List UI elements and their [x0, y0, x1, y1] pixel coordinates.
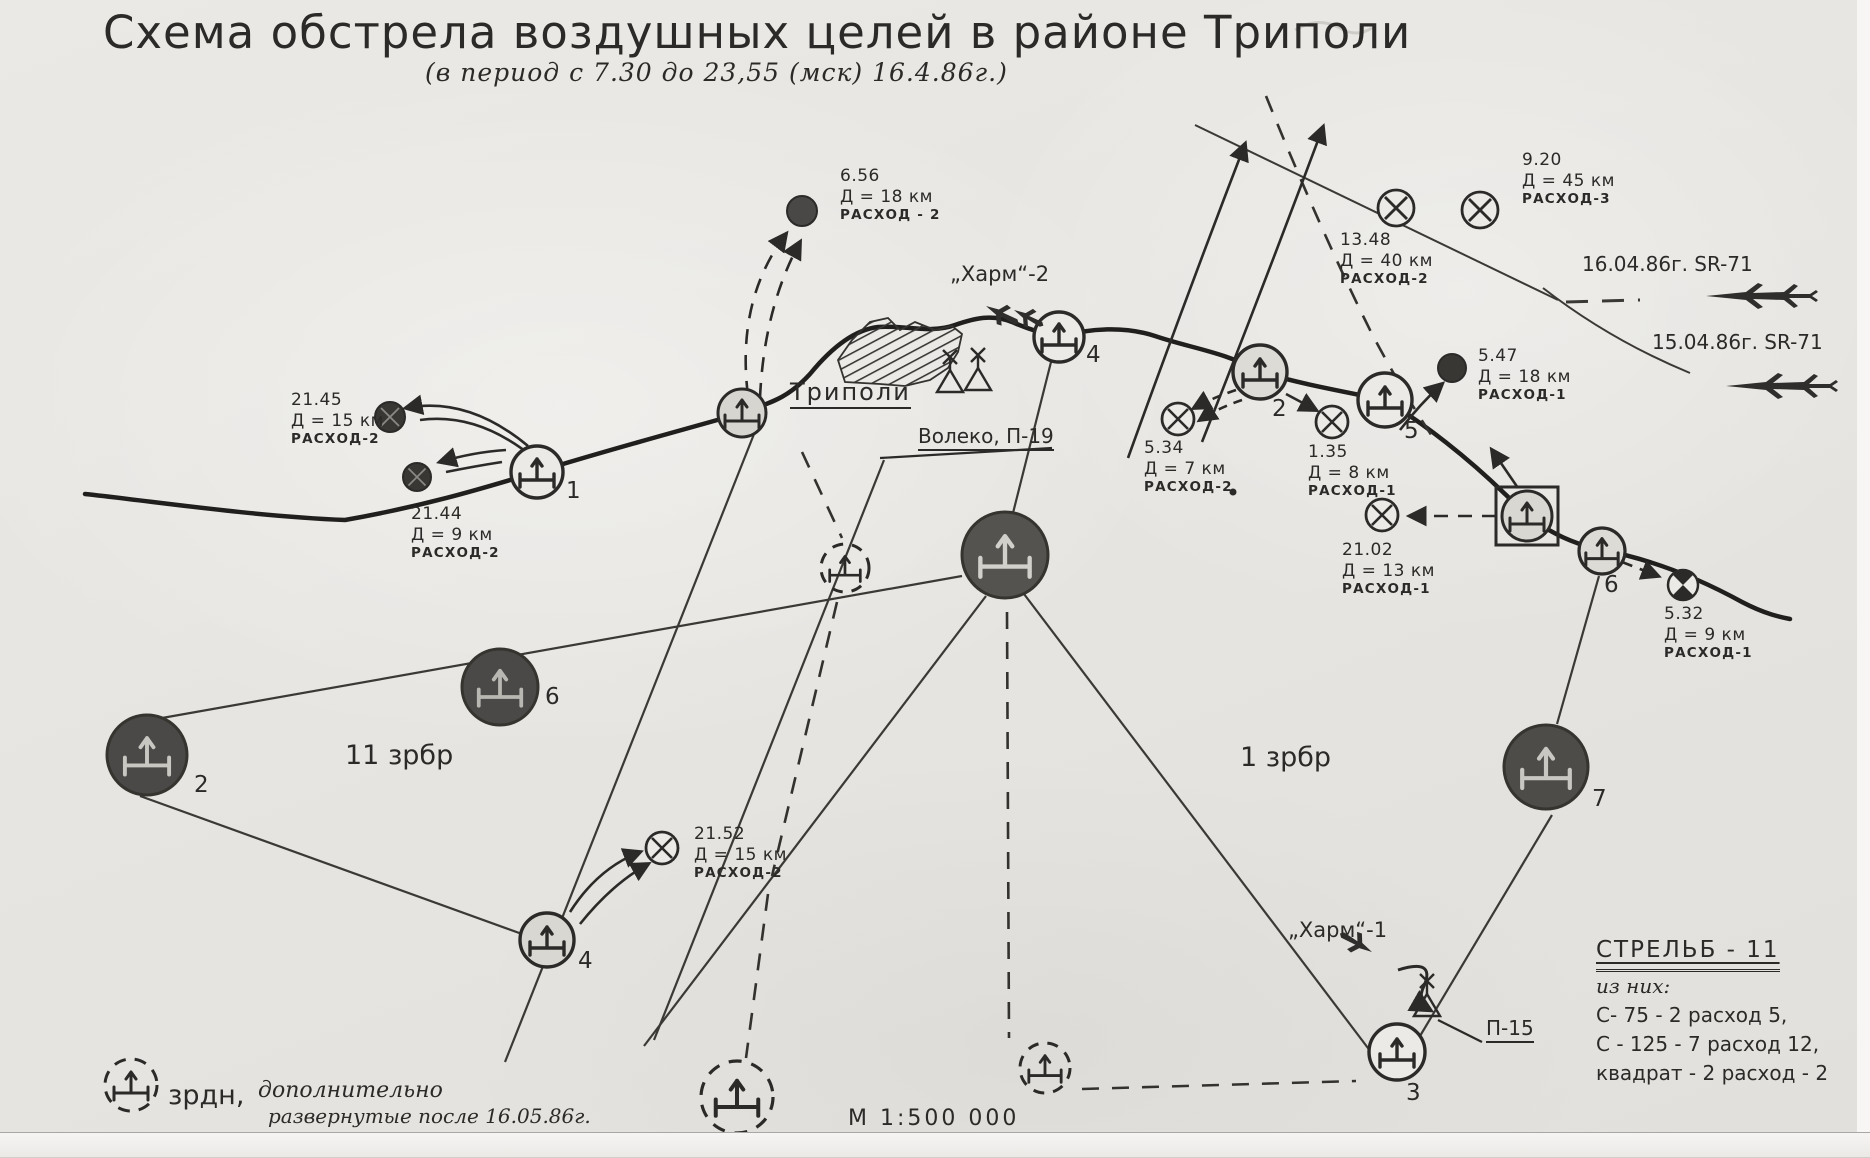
engagement-time: 5.34 — [1144, 438, 1233, 459]
firing-summary-box: стрельб - 11 из них: С- 75 - 2 расход 5,… — [1596, 934, 1828, 1088]
engagement-range: Д = 18 км — [1478, 367, 1571, 388]
sam-site-icon-w-coastal — [718, 389, 766, 437]
engagement-range: Д = 18 км — [840, 187, 941, 208]
engagement-range: Д = 7 км — [1144, 459, 1233, 480]
harm2-label: „Харм“-2 — [950, 262, 1049, 286]
engagement-time: 5.47 — [1478, 346, 1571, 367]
legend-note-line1: дополнительно — [258, 1078, 443, 1103]
kill-mark-532-pie-icon — [1668, 570, 1698, 600]
engagement-expenditure: расход-2 — [411, 545, 500, 561]
engagement-time: 21.52 — [694, 824, 787, 845]
engagement-annotation-2144: 21.44 Д = 9 км расход-2 — [411, 504, 500, 562]
sam-site-icon-dashed-3 — [1020, 1043, 1070, 1093]
sam-site-icon-e2 — [1233, 345, 1287, 399]
engagement-expenditure: расход-2 — [694, 865, 787, 881]
city-label-tripoli: Триполи — [790, 378, 911, 409]
map-scale-label: М 1:500 000 — [848, 1106, 1019, 1131]
firing-summary-line-s125: С - 125 - 7 расход 12, — [1596, 1030, 1828, 1059]
sam-site-icon-dashed-2 — [701, 1061, 773, 1133]
radar-label-p15: П-15 — [1486, 1016, 1534, 1043]
engagement-time: 9.20 — [1522, 150, 1615, 171]
engagement-annotation-135: 1.35 Д = 8 км расход-1 — [1308, 442, 1397, 500]
engagement-range: Д = 8 км — [1308, 463, 1397, 484]
engagement-expenditure: расход-1 — [1664, 645, 1753, 661]
launch-mark-2102-icon — [1366, 499, 1398, 531]
sam-site-icon-center-dark — [962, 512, 1048, 598]
site-label-w1: 1 — [566, 478, 581, 504]
engagement-annotation-1348: 13.48 Д = 40 км расход-2 — [1340, 230, 1433, 288]
engagement-annotation-547: 5.47 Д = 18 км расход-1 — [1478, 346, 1571, 404]
engagement-time: 21.44 — [411, 504, 500, 525]
horizontal-scrollbar[interactable] — [0, 1132, 1870, 1158]
launch-mark-2152-icon — [646, 832, 678, 864]
engagement-annotation-656: 6.56 Д = 18 км расход - 2 — [840, 166, 941, 224]
firing-summary-line-s75: С- 75 - 2 расход 5, — [1596, 1001, 1828, 1030]
engagement-annotation-2102: 21.02 Д = 13 км расход-1 — [1342, 540, 1435, 598]
sam-site-icon-e4 — [1034, 312, 1084, 362]
engagement-annotation-2145: 21.45 Д = 15 км расход-2 — [291, 390, 384, 448]
legend-note-line2: развернутые после 16.05.86г. — [268, 1104, 591, 1128]
engagement-expenditure: расход-2 — [291, 431, 384, 447]
engagement-range: Д = 40 км — [1340, 251, 1433, 272]
firing-summary-subtitle: из них: — [1596, 972, 1828, 1001]
engagement-time: 1.35 — [1308, 442, 1397, 463]
engagement-range: Д = 9 км — [411, 525, 500, 546]
sam-site-icon-w6 — [462, 649, 538, 725]
sr71-label-1504: 15.04.86г. SR-71 — [1652, 330, 1823, 354]
engagement-annotation-532: 5.32 Д = 9 км расход-1 — [1664, 604, 1753, 662]
page-right-margin — [1857, 0, 1870, 1158]
engagement-annotation-2152: 21.52 Д = 15 км расход-2 — [694, 824, 787, 882]
firing-summary-line-kvadrat: квадрат - 2 расход - 2 — [1596, 1059, 1828, 1088]
harm1-label: „Харм“-1 — [1288, 918, 1387, 942]
engagement-range: Д = 13 км — [1342, 561, 1435, 582]
sam-site-icon-e6 — [1579, 528, 1625, 574]
harm2-jet-1-icon — [981, 296, 1024, 333]
sam-site-icon-e3 — [1369, 1024, 1425, 1080]
kill-mark-656-icon — [787, 196, 817, 226]
site-label-e4: 4 — [1086, 342, 1101, 368]
engagement-expenditure: расход-1 — [1478, 387, 1571, 403]
launch-marks — [646, 190, 1498, 864]
radar-label-p19: Волеко, П-19 — [918, 424, 1054, 451]
page-title: Схема обстрела воздушных целей в районе … — [103, 6, 1411, 59]
sr71-label-1604: 16.04.86г. SR-71 — [1582, 252, 1753, 276]
engagement-expenditure: расход-1 — [1342, 581, 1435, 597]
engagement-time: 13.48 — [1340, 230, 1433, 251]
sam-site-icon-e7 — [1504, 725, 1588, 809]
scanned-map-page: Схема обстрела воздушных целей в районе … — [0, 0, 1870, 1158]
site-label-e3: 3 — [1406, 1080, 1421, 1106]
engagement-range: Д = 45 км — [1522, 171, 1615, 192]
sr71-aircraft-1504-icon — [1726, 373, 1838, 399]
kill-mark-547-icon — [1438, 354, 1466, 382]
sam-site-icon-dashed-1 — [821, 544, 869, 592]
brigade-label-east: 1 зрбр — [1240, 742, 1331, 773]
site-label-e7: 7 — [1592, 786, 1607, 812]
brigade-label-west: 11 зрбр — [345, 740, 453, 771]
site-label-e2: 2 — [1272, 396, 1287, 422]
site-label-e6: 6 — [1604, 572, 1619, 598]
engagement-time: 5.32 — [1664, 604, 1753, 625]
page-subtitle: (в период с 7.30 до 23,55 (мск) 16.4.86г… — [425, 58, 1008, 87]
sam-site-icon-w1 — [511, 446, 563, 498]
kill-mark-2144-icon — [403, 463, 431, 491]
site-label-e5: 5 — [1404, 418, 1419, 444]
launch-mark-135-icon — [1316, 406, 1348, 438]
engagement-range: Д = 15 км — [694, 845, 787, 866]
engagement-range: Д = 9 км — [1664, 625, 1753, 646]
engagement-range: Д = 15 км — [291, 411, 384, 432]
engagement-time: 21.45 — [291, 390, 384, 411]
site-label-w4: 4 — [578, 948, 593, 974]
legend-term-zrdn: зрдн, — [168, 1080, 244, 1111]
engagement-expenditure: расход-2 — [1340, 271, 1433, 287]
radar-p19-icon-2 — [965, 348, 991, 390]
engagement-annotation-920: 9.20 Д = 45 км расход-3 — [1522, 150, 1615, 208]
site-label-w6: 6 — [545, 684, 560, 710]
firing-summary-title: стрельб - 11 — [1596, 934, 1780, 972]
launch-mark-1348-icon — [1378, 190, 1414, 226]
engagement-annotation-534: 5.34 Д = 7 км расход-2 — [1144, 438, 1233, 496]
sr71-aircraft-1604-icon — [1706, 283, 1818, 309]
engagement-expenditure: расход-2 — [1144, 479, 1233, 495]
sam-site-icon-w4 — [520, 913, 574, 967]
site-label-w2: 2 — [194, 772, 209, 798]
sr71-track-lines — [1195, 125, 1690, 373]
launch-mark-534-icon — [1162, 403, 1194, 435]
engagement-time: 21.02 — [1342, 540, 1435, 561]
engagement-time: 6.56 — [840, 166, 941, 187]
sam-site-icon-w2 — [107, 715, 187, 795]
legend-dashed-site-icon — [105, 1059, 157, 1111]
launch-mark-920-icon — [1462, 192, 1498, 228]
engagement-expenditure: расход-3 — [1522, 191, 1615, 207]
engagement-expenditure: расход-1 — [1308, 483, 1397, 499]
engagement-expenditure: расход - 2 — [840, 207, 941, 223]
